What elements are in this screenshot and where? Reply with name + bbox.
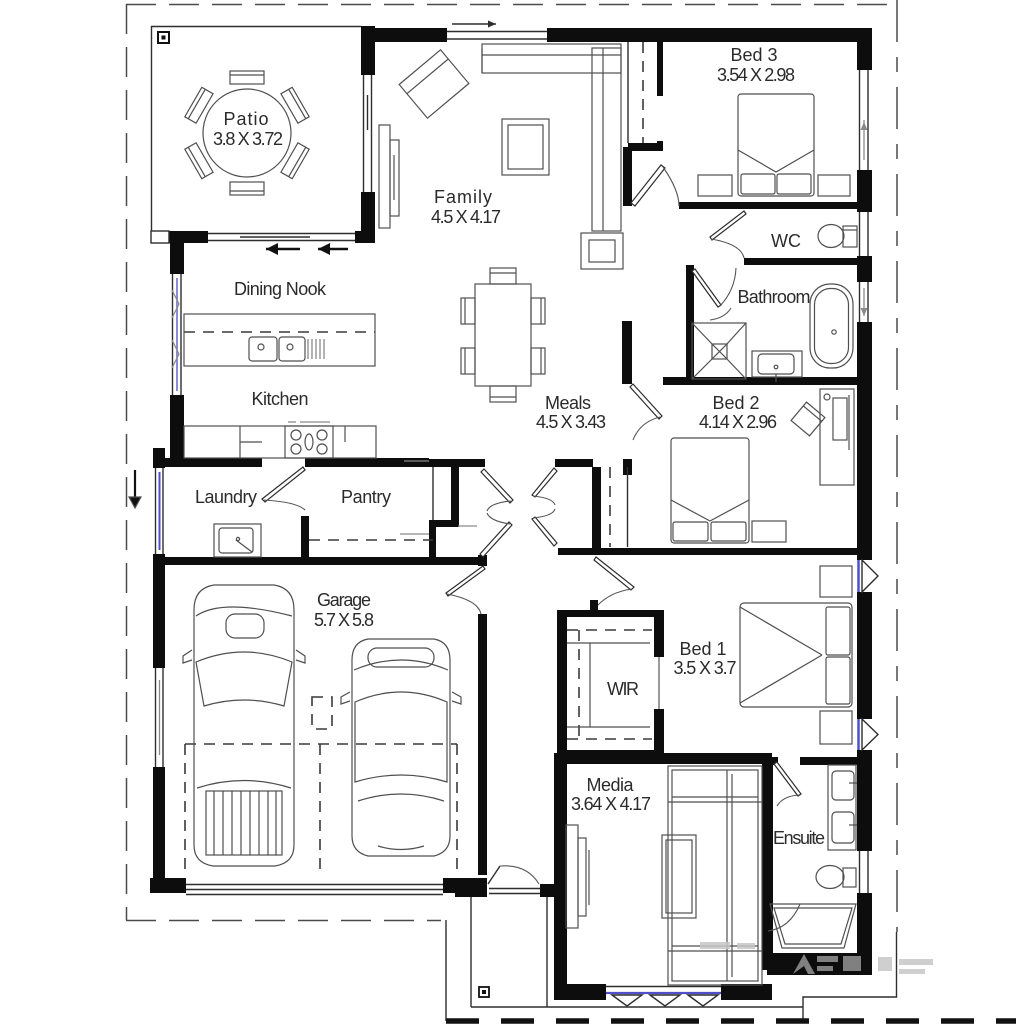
svg-text:Patio: Patio xyxy=(224,109,269,129)
svg-text:Bed 1: Bed 1 xyxy=(680,639,727,659)
svg-text:Laundry: Laundry xyxy=(195,487,257,507)
svg-text:Garage: Garage xyxy=(317,590,371,610)
svg-text:4.14 X 2.96: 4.14 X 2.96 xyxy=(699,412,777,432)
svg-text:Ensuite: Ensuite xyxy=(773,828,825,848)
svg-text:3.54 X 2.98: 3.54 X 2.98 xyxy=(717,65,795,85)
svg-text:4.5 X 4.17: 4.5 X 4.17 xyxy=(431,207,501,227)
svg-text:5.7 X 5.8: 5.7 X 5.8 xyxy=(314,610,374,630)
svg-text:Family: Family xyxy=(434,187,492,207)
svg-text:4.5 X 3.43: 4.5 X 3.43 xyxy=(536,412,606,432)
svg-text:WIR: WIR xyxy=(607,679,639,699)
svg-text:WC: WC xyxy=(771,231,801,251)
svg-text:Dining Nook: Dining Nook xyxy=(234,279,327,299)
svg-text:Pantry: Pantry xyxy=(341,487,391,507)
svg-text:Kitchen: Kitchen xyxy=(252,389,309,409)
svg-text:Meals: Meals xyxy=(545,393,591,413)
svg-text:3.8 X 3.72: 3.8 X 3.72 xyxy=(213,129,283,149)
svg-text:Media: Media xyxy=(587,775,635,795)
svg-text:Bed 3: Bed 3 xyxy=(731,45,778,65)
svg-text:Bathroom: Bathroom xyxy=(738,287,811,307)
svg-text:3.5 X 3.7: 3.5 X 3.7 xyxy=(674,658,737,678)
svg-text:Bed 2: Bed 2 xyxy=(713,393,760,413)
svg-text:3.64 X 4.17: 3.64 X 4.17 xyxy=(571,794,651,814)
